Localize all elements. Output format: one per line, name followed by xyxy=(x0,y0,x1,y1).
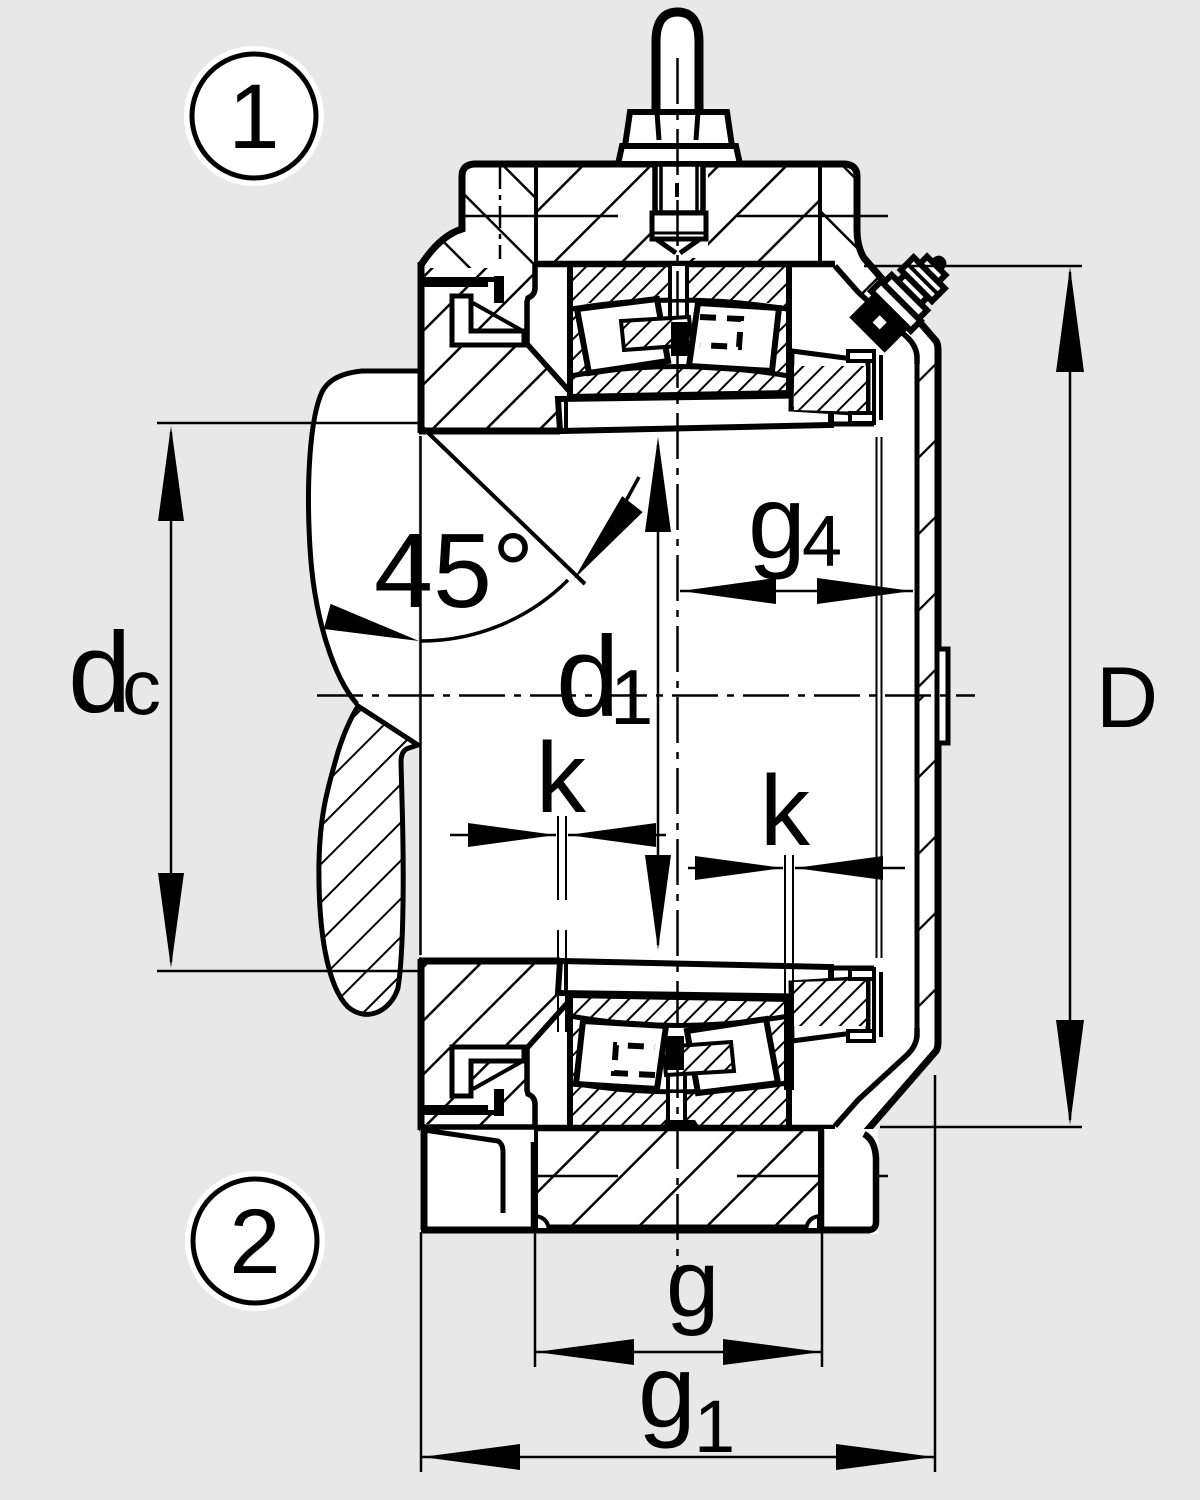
svg-text:1: 1 xyxy=(228,66,279,168)
svg-text:2: 2 xyxy=(229,1191,280,1293)
svg-text:c: c xyxy=(122,643,161,731)
svg-text:g: g xyxy=(748,465,806,581)
svg-text:k: k xyxy=(760,755,811,867)
svg-text:1: 1 xyxy=(610,653,653,741)
svg-text:g: g xyxy=(638,1334,696,1450)
svg-text:45°: 45° xyxy=(374,512,534,630)
svg-text:g: g xyxy=(666,1230,719,1337)
svg-text:k: k xyxy=(536,722,587,834)
svg-text:4: 4 xyxy=(802,502,842,582)
svg-text:1: 1 xyxy=(694,1385,735,1468)
svg-text:D: D xyxy=(1096,650,1158,746)
